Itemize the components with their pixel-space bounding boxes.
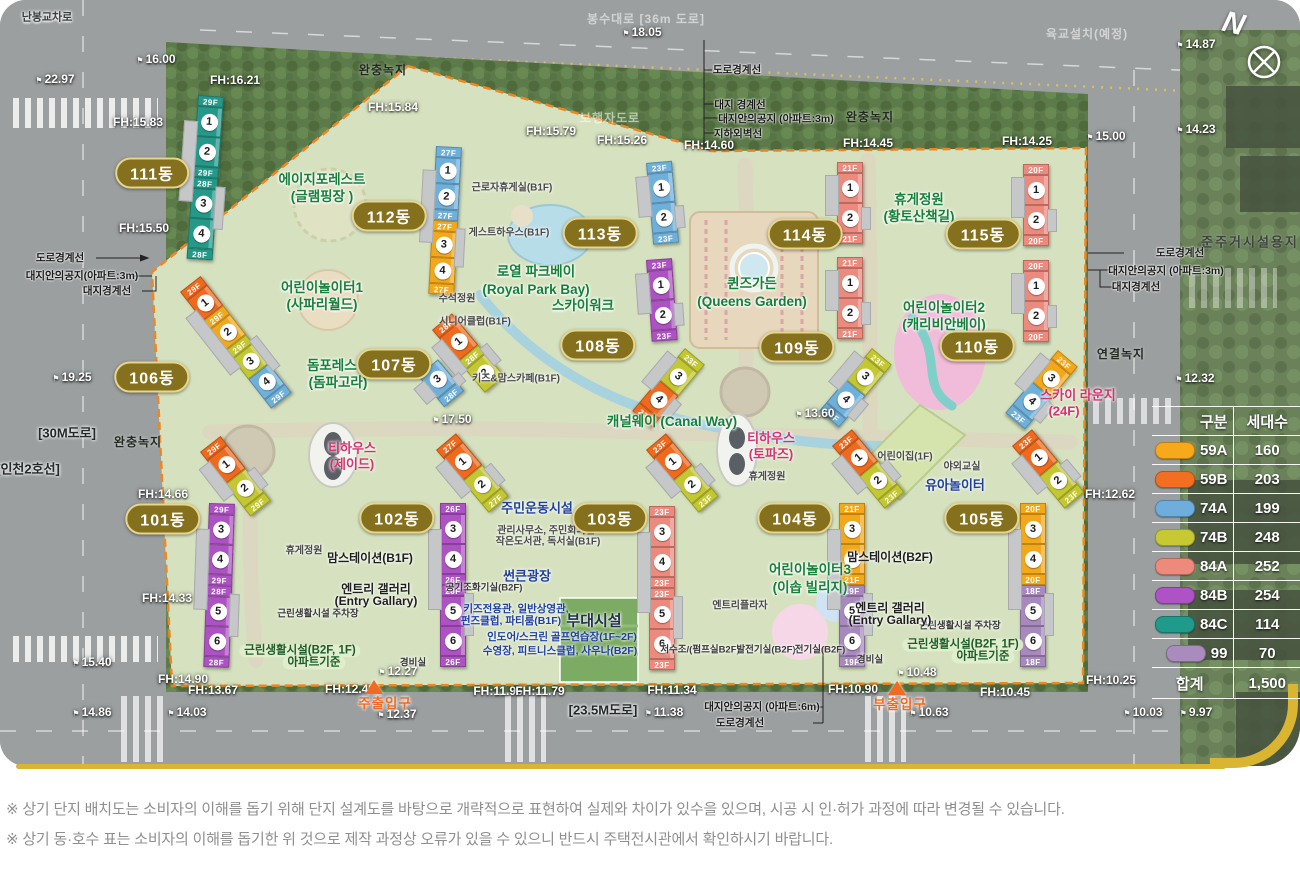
blue-label-91: 유아놀이터 <box>925 479 985 494</box>
bluesm-label-93: 펀즈클럽, 파티룸(B1F) <box>461 615 561 627</box>
building-109-tower-1: 21F1221F <box>837 257 863 339</box>
gray-label-106: 엔트리플라자 <box>712 600 767 612</box>
building-115-unit-1: 1 <box>1023 175 1049 205</box>
building-109-mass <box>861 302 871 325</box>
building-114-unit-1: 1 <box>837 173 863 203</box>
pt-label-37: 10.48 <box>897 666 936 680</box>
unit-number: 1 <box>1028 182 1045 199</box>
building-105-unit-3: 3 <box>1020 514 1046 544</box>
building-102-unit-6: 6 <box>440 626 466 656</box>
darksm-label-113: 발전기실(B2F) <box>736 646 795 657</box>
building-102-unit-4: 4 <box>440 544 466 574</box>
pt-label-23: 18.05 <box>622 26 661 40</box>
bluesm-label-95: 수영장, 피트니스클럽, 사우나(B2F) <box>483 645 637 657</box>
unit-number: 3 <box>1025 521 1042 538</box>
roadbr-label-47: [인천2호선] <box>0 463 60 478</box>
meas-label-17: FH:10.90 <box>828 683 878 697</box>
blue-label-89: 주민운동시설 <box>501 502 573 517</box>
greenb-label-124: 아파트기준 <box>283 656 346 669</box>
building-115-tower-1: 20F1220F <box>1023 164 1049 246</box>
callout-label-56: 도로경계선 <box>713 64 761 76</box>
unit-number: 6 <box>208 633 226 651</box>
unit-number: 2 <box>1028 308 1045 325</box>
meas-label-8: FH:14.25 <box>1002 135 1052 149</box>
building-101-mass <box>228 594 239 637</box>
building-101-unit-3: 3 <box>208 514 235 545</box>
meas-label-16: FH:11.34 <box>647 684 696 698</box>
gray-label-108: 작은도서관, 독서실(B1F) <box>496 536 601 548</box>
legend-swatch-84A <box>1155 558 1195 575</box>
fac-label-78: (황토산책길) <box>883 209 954 225</box>
legend-count: 160 <box>1255 442 1280 459</box>
unit-number: 3 <box>212 521 230 539</box>
roadbr-label-48: [23.5M도로] <box>569 704 638 719</box>
building-105-unit-4: 4 <box>1020 544 1046 574</box>
floor-tag: 29F <box>209 503 235 515</box>
legend-count: 252 <box>1255 558 1280 575</box>
main-entrance-marker <box>365 680 383 694</box>
road-label-45: 난봉교차로 <box>22 12 73 25</box>
floor-tag: 20F <box>1023 164 1049 175</box>
building-110-unit-2: 2 <box>1023 301 1049 331</box>
unit-number: 1 <box>842 180 859 197</box>
unit-number: 4 <box>192 224 210 242</box>
unit-number: 4 <box>434 262 452 280</box>
legend-count: 254 <box>1255 587 1280 604</box>
gray-label-99: 시니어클럽(B1F) <box>439 316 511 328</box>
building-114-mass <box>861 207 871 230</box>
legend-header-row: 구분세대수 <box>1152 406 1300 435</box>
callout-label-61: 대지안의공지 (아파트:3m) <box>1108 265 1224 277</box>
legend-count: 70 <box>1259 645 1276 662</box>
legend-key: 99 <box>1211 645 1228 662</box>
unit-number: 5 <box>445 603 462 620</box>
floor-tag: 20F <box>1023 260 1049 271</box>
fac-label-70: (돔파고라) <box>309 375 368 391</box>
pt-label-21: 16.00 <box>136 53 175 67</box>
unit-number: 3 <box>435 236 453 254</box>
floor-tag: 18F <box>1020 585 1046 596</box>
callout-label-60: 도로경계선 <box>1156 247 1204 259</box>
pt-label-33: 14.03 <box>167 706 206 720</box>
pink-label-84: (제이드) <box>330 458 375 473</box>
navy-label-96: 부대시설 <box>566 612 621 629</box>
unit-number: 3 <box>844 521 861 538</box>
meas-label-10: FH:14.33 <box>142 592 192 606</box>
legend-swatch-84C <box>1155 616 1195 633</box>
legend-count: 203 <box>1255 471 1280 488</box>
site-plan-map: 29F1229F29F3429F28F5628F27F1227F26F3426F… <box>0 0 1300 766</box>
unit-number: 2 <box>842 210 859 227</box>
zone-label-41: 완충녹지 <box>359 64 407 78</box>
unit-number: 1 <box>200 113 218 131</box>
unit-number: 2 <box>437 188 455 206</box>
unit-number: 1 <box>652 276 670 294</box>
legend-key: 84B <box>1200 587 1228 604</box>
gray-label-97: 근로자휴게실(B1F) <box>472 182 553 194</box>
building-label-104: 104동 <box>757 503 832 534</box>
legend-key: 84A <box>1200 558 1228 575</box>
building-108-mass <box>673 303 685 326</box>
unit-number: 5 <box>1025 603 1042 620</box>
gray-label-104: 어린이집(1F) <box>877 451 932 463</box>
building-101-unit-5: 5 <box>205 596 232 627</box>
legend-count: 248 <box>1255 529 1280 546</box>
meas-label-0: FH:16.21 <box>210 74 260 88</box>
site-plan-frame: 29F1229F29F3429F28F5628F27F1227F26F3426F… <box>0 0 1300 780</box>
floor-tag: 21F <box>837 162 863 173</box>
gray-label-103: 휴게정원 <box>286 545 323 557</box>
legend-swatch-74A <box>1155 500 1195 517</box>
building-115-mass <box>1047 209 1057 232</box>
ghost-label-50: 육교설치(예정) <box>1046 28 1128 42</box>
building-label-113: 113동 <box>563 218 638 249</box>
building-105-unit-5: 5 <box>1020 596 1046 626</box>
pt-label-24: 14.87 <box>1176 38 1215 52</box>
building-105-unit-6: 6 <box>1020 626 1046 656</box>
building-105-tower-2: 20F3420F18F5618F <box>1020 503 1046 667</box>
zone-label-42: 완충녹지 <box>846 111 894 125</box>
fac-label-74: 캐널웨이 (Canal Way) <box>607 414 737 430</box>
floor-tag: 26F <box>440 503 466 514</box>
pt-label-28: 12.32 <box>1175 372 1214 386</box>
meas-label-1: FH:15.84 <box>368 101 418 115</box>
building-label-107: 107동 <box>356 349 431 380</box>
pt-label-27: 19.25 <box>52 371 91 385</box>
darksm-label-112: 저수조/(펌프실B2F) <box>660 646 739 657</box>
pink-label-83: 티하우스 <box>328 442 376 457</box>
gray-label-98: 게스트하우스(B1F) <box>469 227 550 239</box>
floor-tag: 20F <box>1023 235 1049 246</box>
building-109-mass <box>825 270 839 311</box>
building-label-108: 108동 <box>560 330 635 361</box>
pink-label-88: (24F) <box>1048 405 1079 420</box>
pink-label-85: 티하우스 <box>747 432 795 447</box>
callout-label-62: 대지경계선 <box>1112 281 1160 293</box>
legend-key: 59A <box>1200 442 1228 459</box>
pink-label-87: 스카이 라운지 <box>1040 389 1115 404</box>
fac-label-72: (Royal Park Bay) <box>482 282 589 298</box>
unit-number: 4 <box>211 551 229 569</box>
fac-label-68: (사파리월드) <box>286 297 357 313</box>
unit-number: 6 <box>1025 633 1042 650</box>
building-103-unit-5: 5 <box>649 599 675 629</box>
building-111-unit-4: 4 <box>187 218 215 250</box>
building-label-102: 102동 <box>359 503 434 534</box>
meas-label-15: FH:11.79 <box>515 685 564 699</box>
zone-label-43: 완충녹지 <box>114 436 162 450</box>
building-112-unit-4: 4 <box>429 257 456 284</box>
legend-count: 114 <box>1255 616 1279 633</box>
building-101-mass <box>193 529 210 610</box>
site-plan-page: 29F1229F29F3429F28F5628F27F1227F26F3426F… <box>0 0 1300 881</box>
meas-label-12: FH:13.67 <box>188 684 238 698</box>
legend-swatch-99 <box>1166 645 1206 662</box>
fac-label-71: 로열 파크베이 <box>497 264 575 280</box>
building-label-112: 112동 <box>352 201 427 232</box>
floor-tag: 28F <box>203 656 229 668</box>
floor-tag: 23F <box>652 231 679 244</box>
unit-number: 3 <box>654 524 671 541</box>
legend-header-count: 세대수 <box>1247 411 1288 432</box>
unit-number: 4 <box>654 554 671 571</box>
district-label-52: 준주거시설용지 <box>1201 236 1299 251</box>
building-label-106: 106동 <box>114 362 189 393</box>
building-110-mass <box>1047 305 1057 328</box>
callout-label-64: 도로경계선 <box>716 717 764 729</box>
fac-label-65: 에이지포레스트 <box>279 172 366 188</box>
building-label-105: 105동 <box>944 503 1019 534</box>
building-115-unit-2: 2 <box>1023 205 1049 235</box>
unit-number: 1 <box>842 275 859 292</box>
floor-tag: 28F <box>206 585 232 597</box>
bluesm-label-92: 키즈전용관, 일반상영관, <box>463 603 568 615</box>
building-label-101: 101동 <box>125 504 200 535</box>
fac-label-76: (Queens Garden) <box>697 294 807 310</box>
unit-number: 2 <box>198 143 216 161</box>
building-102-mass <box>428 529 442 610</box>
greenb-label-126: 아파트기준 <box>952 650 1015 663</box>
darksm-label-115: 근린생활시설 주차장 <box>277 610 358 621</box>
building-108-unit-1: 1 <box>647 269 675 301</box>
building-105-mass <box>1008 529 1022 610</box>
legend-count: 199 <box>1255 500 1280 517</box>
pt-label-32: 14.86 <box>72 706 111 720</box>
floor-tag: 23F <box>651 329 678 342</box>
meas-label-19: FH:10.25 <box>1086 674 1136 688</box>
ghost-label-49: 봉수대로 [36m 도로] <box>587 13 705 27</box>
meas-label-20: FH:12.62 <box>1085 488 1135 502</box>
building-114-mass <box>825 175 839 216</box>
floor-tag: 23F <box>649 588 675 599</box>
legend-key: 84C <box>1200 616 1228 633</box>
legend-key: 74B <box>1200 529 1228 546</box>
darksm-label-109: 공기조화기실(B2F) <box>446 584 523 595</box>
building-103-mass <box>673 596 683 639</box>
fac-label-79: 어린이놀이터2 <box>903 300 985 316</box>
floor-tag: 26F <box>440 656 466 667</box>
footnote-1: ※ 상기 단지 배치도는 소비자의 이해를 돕기 위해 단지 설계도를 바탕으로… <box>6 798 1294 819</box>
zone-label-44: 연결녹지 <box>1097 348 1145 362</box>
building-115-mass <box>1011 177 1025 218</box>
bottom-road <box>0 692 1300 766</box>
pt-label-40: 9.97 <box>1180 706 1213 720</box>
unit-number: 2 <box>842 305 859 322</box>
meas-label-9: FH:14.66 <box>138 488 188 502</box>
legend-total-value: 1,500 <box>1248 675 1286 692</box>
pt-label-36: 11.38 <box>645 706 684 720</box>
sub-entrance-label: 부출입구 <box>873 697 927 713</box>
legend-swatch-84B <box>1155 587 1195 604</box>
meas-label-7: FH:14.45 <box>843 137 893 151</box>
unit-number: 5 <box>209 603 227 621</box>
pt-label-31: 15.40 <box>72 656 111 670</box>
footnotes: ※ 상기 단지 배치도는 소비자의 이해를 돕기 위해 단지 설계도를 바탕으로… <box>0 790 1300 866</box>
meas-label-3: FH:15.50 <box>119 222 169 236</box>
gray-label-100: 수석정원 <box>439 293 476 305</box>
dark-label-118: 맘스테이션(B2F) <box>847 551 933 565</box>
pt-label-26: 15.00 <box>1086 130 1125 144</box>
unit-number: 4 <box>445 551 462 568</box>
fac-label-81: 어린이놀이터3 <box>769 562 851 578</box>
unit-type-legend: 구분세대수59A16059B20374A19974B24884A25284B25… <box>1152 406 1300 699</box>
gray-label-102: 휴게정원 <box>749 471 786 483</box>
legend-row-84C: 84C114 <box>1152 609 1300 638</box>
footnote-2: ※ 상기 동·호수 표는 소비자의 이해를 돕기한 위 것으로 제작 과정상 오… <box>6 828 1294 849</box>
fac-label-82: (이솝 빌리지) <box>773 580 848 596</box>
callout-label-63: 대지안의공지 (아파트:6m) <box>704 701 820 713</box>
bluesm-label-94: 인도어/스크린 골프연습장(1F~2F) <box>487 631 637 643</box>
callout-label-58: 대지안의공지 (아파트:3m) <box>718 113 834 125</box>
building-102-unit-3: 3 <box>440 514 466 544</box>
building-109-unit-1: 1 <box>837 268 863 298</box>
fac-label-67: 어린이놀이터1 <box>281 280 363 296</box>
unit-number: 3 <box>194 195 212 213</box>
building-103-mass <box>637 532 651 613</box>
main-entrance-label: 주출입구 <box>358 696 412 712</box>
unit-number: 1 <box>439 162 457 180</box>
legend-row-74A: 74A199 <box>1152 493 1300 522</box>
roadbr-label-46: [30M도로] <box>38 427 96 442</box>
gray-label-101: 키즈&맘스카페(B1F) <box>472 373 560 385</box>
building-110-unit-1: 1 <box>1023 271 1049 301</box>
building-label-115: 115동 <box>946 219 1021 250</box>
building-111-unit-2: 2 <box>193 136 221 168</box>
pt-label-30: 13.60 <box>795 407 834 421</box>
building-108-mass <box>635 273 652 315</box>
building-label-103: 103동 <box>572 503 647 534</box>
pink-label-86: (토파즈) <box>749 448 794 463</box>
darksm-label-110: 경비실 <box>400 659 426 670</box>
building-104-unit-3: 3 <box>839 514 865 544</box>
building-101-unit-4: 4 <box>207 544 234 575</box>
building-113-mass <box>674 205 686 228</box>
unit-number: 2 <box>655 208 673 226</box>
callout-label-57: 대지 경계선 <box>714 99 765 111</box>
unit-number: 2 <box>1028 212 1045 229</box>
unit-number: 6 <box>844 633 861 650</box>
legend-header-type: 구분 <box>1200 411 1228 432</box>
building-112-unit-1: 1 <box>434 157 461 184</box>
legend-row-84A: 84A252 <box>1152 551 1300 580</box>
legend-total-label: 합계 <box>1176 673 1204 694</box>
darksm-label-114: 전기실(B2F) <box>795 646 846 657</box>
floor-tag: 23F <box>649 659 675 670</box>
building-label-111: 111동 <box>115 158 189 189</box>
fac-label-73: 스카이워크 <box>552 298 614 314</box>
legend-row-59B: 59B203 <box>1152 464 1300 493</box>
floor-tag: 20F <box>1020 574 1046 585</box>
pt-label-25: 14.23 <box>1176 123 1215 137</box>
sub-entrance-marker <box>888 681 906 695</box>
floor-tag: 20F <box>1020 503 1046 514</box>
gray-label-105: 야외교실 <box>944 461 981 473</box>
meas-label-18: FH:10.45 <box>980 686 1030 700</box>
gold-border-line <box>16 764 1226 769</box>
legend-key: 74A <box>1200 500 1228 517</box>
pt-label-22: 22.97 <box>35 73 74 87</box>
floor-tag: 21F <box>837 257 863 268</box>
floor-tag: 18F <box>1020 656 1046 667</box>
building-105-mass <box>1044 593 1054 636</box>
building-109-unit-2: 2 <box>837 298 863 328</box>
floor-tag: 29F <box>206 574 232 586</box>
callout-label-53: 도로경계선 <box>36 252 84 264</box>
legend-total-row: 합계1,500 <box>1152 667 1300 699</box>
building-label-110: 110동 <box>940 331 1015 362</box>
compass: N <box>1222 12 1284 87</box>
dark-label-117: 맘스테이션(B1F) <box>327 552 413 566</box>
building-112-unit-2: 2 <box>433 183 460 210</box>
callout-label-59: 지하외벽선 <box>714 128 762 140</box>
unit-number: 5 <box>654 606 671 623</box>
unit-number: 6 <box>445 633 462 650</box>
dark-label-122: (Entry Gallary) <box>849 614 932 628</box>
building-110-tower-1: 20F1220F <box>1023 260 1049 342</box>
dark-label-120: (Entry Gallary) <box>335 595 418 609</box>
unit-number: 1 <box>652 179 670 197</box>
darksm-label-111: 경비실 <box>857 656 883 667</box>
floor-tag: 21F <box>839 503 865 514</box>
fac-label-66: (글램핑장 ) <box>291 189 353 205</box>
floor-tag: 21F <box>837 328 863 339</box>
unit-number: 3 <box>445 521 462 538</box>
building-110-mass <box>1011 273 1025 314</box>
meas-label-4: FH:15.79 <box>526 125 576 139</box>
unit-number: 4 <box>1025 551 1042 568</box>
floor-tag: 23F <box>649 577 675 588</box>
legend-row-99: 9970 <box>1152 638 1300 667</box>
ghost-label-51: 보행자도로 <box>580 112 640 126</box>
legend-swatch-59A <box>1155 442 1195 459</box>
pt-label-39: 10.03 <box>1123 706 1162 720</box>
meas-label-2: FH:15.83 <box>113 116 163 130</box>
building-112-mass <box>454 229 466 268</box>
legend-row-84B: 84B254 <box>1152 580 1300 609</box>
fac-label-75: 퀸즈가든 <box>727 276 777 292</box>
callout-label-54: 대지안의공지(아파트:3m) <box>26 270 139 282</box>
floor-tag: 28F <box>187 248 214 261</box>
building-111-unit-1: 1 <box>195 106 223 138</box>
floor-tag: 20F <box>1023 331 1049 342</box>
building-101-unit-6: 6 <box>204 626 231 657</box>
callout-label-55: 대지경계선 <box>83 285 131 297</box>
legend-row-59A: 59A160 <box>1152 435 1300 464</box>
fac-label-77: 휴게정원 <box>894 192 944 208</box>
unit-number: 2 <box>654 306 672 324</box>
legend-key: 59B <box>1200 471 1228 488</box>
building-label-109: 109동 <box>759 332 834 363</box>
legend-swatch-74B <box>1155 529 1195 546</box>
meas-label-5: FH:15.26 <box>597 134 647 148</box>
compass-icon <box>1244 42 1284 82</box>
meas-label-6: FH:14.60 <box>684 139 734 153</box>
unit-number: 1 <box>1028 278 1045 295</box>
building-103-unit-4: 4 <box>649 547 675 577</box>
legend-swatch-59B <box>1155 471 1195 488</box>
building-label-114: 114동 <box>768 219 843 250</box>
legend-row-74B: 74B248 <box>1152 522 1300 551</box>
building-103-unit-3: 3 <box>649 517 675 547</box>
pt-label-29: 17.50 <box>432 413 471 427</box>
floor-tag: 23F <box>649 506 675 517</box>
